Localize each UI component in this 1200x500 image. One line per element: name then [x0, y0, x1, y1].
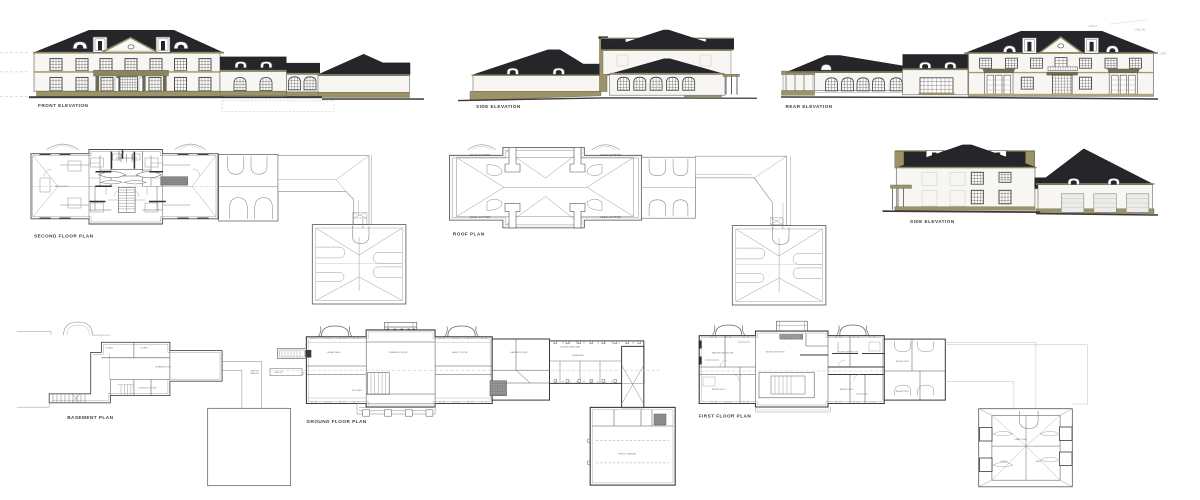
svg-text:GROUND FLOOR PLAN: GROUND FLOOR PLAN	[306, 419, 366, 424]
svg-text:BEDROOM 5: BEDROOM 5	[896, 391, 910, 393]
svg-text:GUEST BEDROOM: GUEST BEDROOM	[838, 352, 858, 354]
svg-text:LEAD GUTTER: LEAD GUTTER	[470, 153, 491, 157]
svg-text:LEAD GUTTER: LEAD GUTTER	[470, 215, 491, 219]
svg-text:FIRST FLOOR PLAN: FIRST FLOOR PLAN	[699, 414, 752, 419]
svg-text:BASEMENT PLAN: BASEMENT PLAN	[67, 415, 113, 420]
svg-text:CINEMA ROOM: CINEMA ROOM	[155, 366, 171, 369]
svg-text:KITCHEN: KITCHEN	[352, 390, 362, 392]
svg-text:BEDROOM 6: BEDROOM 6	[55, 186, 69, 188]
svg-text:BEDROOM 4: BEDROOM 4	[896, 361, 910, 363]
svg-text:SECOND FLOOR PLAN: SECOND FLOOR PLAN	[34, 234, 94, 239]
svg-text:LEAD GUTTER: LEAD GUTTER	[600, 215, 621, 219]
svg-text:+46.1 RL: +46.1 RL	[1135, 28, 1146, 32]
svg-text:BEDROOM 3: BEDROOM 3	[840, 389, 854, 391]
svg-text:+44.3 m: +44.3 m	[1088, 24, 1097, 28]
svg-text:STAFF FLAT: STAFF FLAT	[1014, 438, 1028, 441]
svg-text:CONTROL ROOM: CONTROL ROOM	[138, 388, 156, 390]
svg-text:ROOF PLAN: ROOF PLAN	[453, 231, 485, 236]
svg-text:REAR ELEVATION: REAR ELEVATION	[786, 104, 833, 109]
svg-text:+38.2: +38.2	[1160, 52, 1167, 56]
svg-text:CANOPY: CANOPY	[274, 371, 284, 374]
svg-text:LEAD GUTTER: LEAD GUTTER	[600, 153, 621, 157]
svg-text:GARDEN ROOM: GARDEN ROOM	[510, 351, 527, 354]
svg-text:DRAWING ROOM: DRAWING ROOM	[389, 351, 407, 354]
svg-text:STORE: STORE	[140, 348, 148, 350]
svg-text:CANOPY: CANOPY	[250, 372, 260, 375]
svg-text:BEDROOM 2: BEDROOM 2	[712, 389, 726, 391]
svg-text:FAMILY ROOM: FAMILY ROOM	[452, 351, 468, 354]
svg-text:PLANT: PLANT	[106, 347, 114, 350]
svg-text:LINE OF: LINE OF	[250, 371, 259, 373]
svg-text:GLAZED WALKWAY: GLAZED WALKWAY	[560, 346, 581, 349]
svg-text:GREAT HALL: GREAT HALL	[327, 351, 341, 354]
svg-text:TRIPLE GARAGE: TRIPLE GARAGE	[618, 453, 637, 456]
svg-text:BEDROOM SUITE: BEDROOM SUITE	[766, 352, 785, 354]
svg-text:SIDE ELEVATION: SIDE ELEVATION	[476, 104, 521, 109]
svg-text:MASTER BEDROOM: MASTER BEDROOM	[712, 352, 734, 355]
svg-text:ORANGERY: ORANGERY	[572, 354, 585, 357]
svg-text:FRONT ELEVATION: FRONT ELEVATION	[38, 103, 88, 108]
svg-text:LIVING: LIVING	[1000, 461, 1008, 463]
svg-text:SIDE ELEVATION: SIDE ELEVATION	[910, 219, 955, 224]
svg-text:BED: BED	[1036, 461, 1041, 463]
